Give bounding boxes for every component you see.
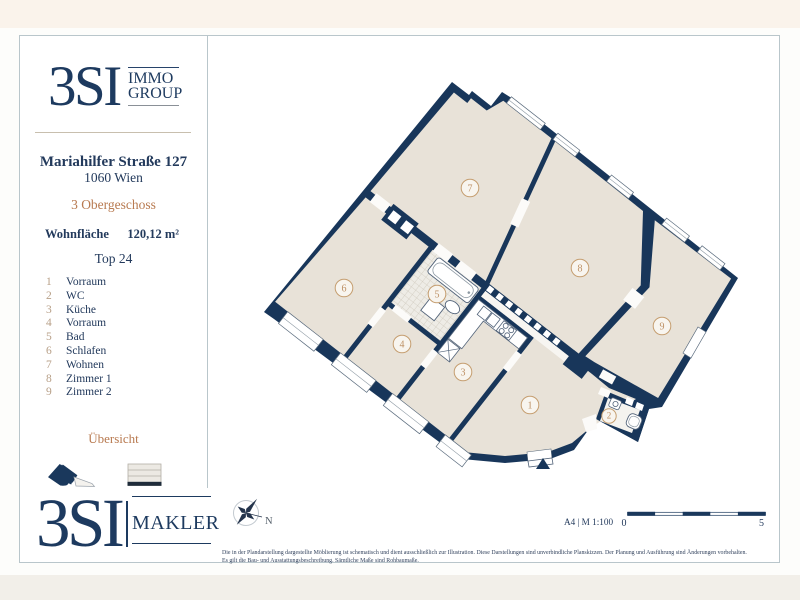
svg-text:8: 8 — [578, 263, 583, 274]
svg-text:9: 9 — [660, 321, 665, 332]
svg-text:6: 6 — [342, 283, 347, 294]
svg-text:3: 3 — [461, 367, 466, 378]
svg-text:5: 5 — [435, 289, 440, 300]
svg-text:1: 1 — [528, 400, 533, 411]
svg-text:4: 4 — [400, 339, 405, 350]
svg-text:7: 7 — [468, 183, 473, 194]
svg-text:2: 2 — [607, 411, 612, 421]
